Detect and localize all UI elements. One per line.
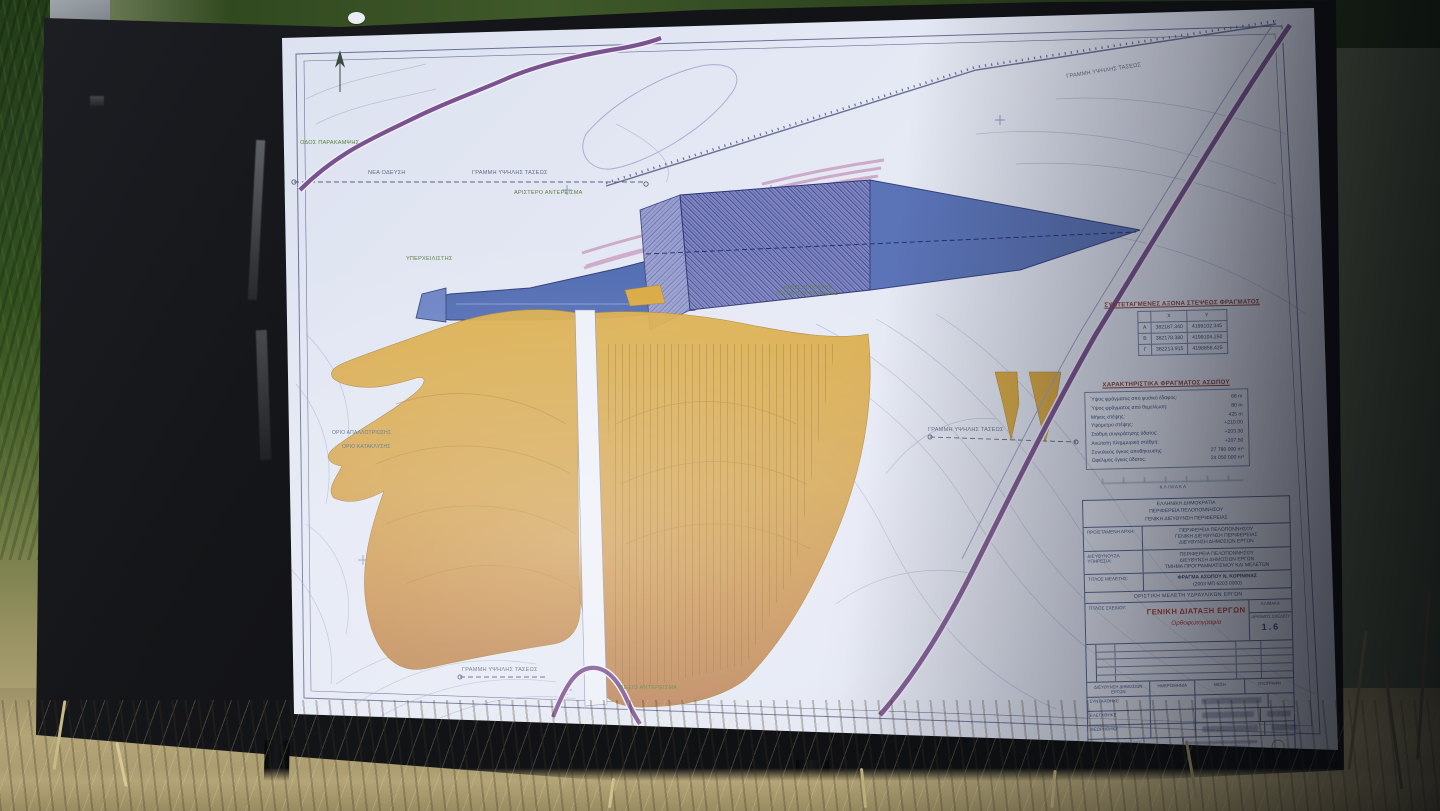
x-value: 382213.915 bbox=[1151, 343, 1188, 355]
map-label: ΓΡΑΜΜΗ ΥΨΗΛΗΣ ΤΑΣΕΩΣ bbox=[472, 170, 548, 176]
map-label: ΟΡΙΟ ΑΠΑΛΛΟΤΡΙΩΣΗΣ bbox=[332, 431, 391, 437]
scale-label: ΚΛΙΜΑΚΑ bbox=[1249, 600, 1291, 614]
point-id: Α bbox=[1138, 322, 1151, 333]
map-label: ΧΩΡΟΣ ΑΠΟΘΕΣΗΣ ΠΡΟΪΟΝΤΩΝ ΕΚΣΚΑΦΗΣ bbox=[766, 286, 848, 298]
satellite-dish bbox=[348, 12, 365, 24]
railway-line bbox=[276, 21, 1276, 186]
x-value: 382178.380 bbox=[1151, 332, 1188, 344]
drawing-title-row: ΤΙΤΛΟΣ ΣΧΕΔΙΟΥ: ΓΕΝΙΚΗ ΔΙΑΤΑΞΗ ΕΡΓΩΝ Ορθ… bbox=[1085, 600, 1292, 646]
drawing-title-label: ΤΙΤΛΟΣ ΣΧΕΔΙΟΥ: bbox=[1085, 603, 1144, 644]
dam-layout-drawing-sheet: ΟΔΟΣ ΠΑΡΑΚΑΜΨΗΣ ΑΡΙΣΤΕΡΟ ΑΝΤΕΡΕΙΣΜΑ ΥΠΕΡ… bbox=[276, 4, 1340, 756]
tape-mark bbox=[90, 96, 104, 106]
map-label: ΥΠΕΡΧΕΙΛΙΣΤΗΣ bbox=[406, 256, 453, 262]
map-label: ΑΡΙΣΤΕΡΟ ΑΝΤΕΡΕΙΣΜΑ bbox=[514, 190, 583, 196]
ground-foreground bbox=[0, 768, 1440, 811]
map-label: ΟΡΙΟ ΚΑΤΑΚΛΥΣΗΣ bbox=[342, 445, 391, 451]
crest-coordinates-table: ΣΥΝΤΕΤΑΓΜΕΝΕΣ ΑΞΟΝΑ ΣΤΕΨΕΩΣ ΦΡΑΓΜΑΤΟΣ X … bbox=[1094, 298, 1271, 357]
point-id: Γ bbox=[1139, 344, 1152, 355]
table-row: Γ 382213.915 4198858.425 bbox=[1139, 342, 1227, 355]
deposit-forks bbox=[995, 372, 1061, 442]
col-y: Y bbox=[1187, 310, 1227, 322]
map-label: ΟΔΟΣ ΠΑΡΑΚΑΜΨΗΣ bbox=[300, 140, 359, 146]
outdoor-photo-scene: ΟΔΟΣ ΠΑΡΑΚΑΜΨΗΣ ΑΡΙΣΤΕΡΟ ΑΝΤΕΡΕΙΣΜΑ ΥΠΕΡ… bbox=[0, 0, 1440, 811]
map-label: ΝΕΑ ΟΔΕΥΣΗ bbox=[368, 170, 406, 176]
dam-characteristics-table: ΧΑΡΑΚΤΗΡΙΣΤΙΚΑ ΦΡΑΓΜΑΤΟΣ ΑΣΩΠΟΥ Ύψος φρά… bbox=[1084, 378, 1250, 470]
tape-mark bbox=[248, 140, 265, 300]
map-label: ΓΡΑΜΜΗ ΥΨΗΛΗΣ ΤΑΣΕΩΣ bbox=[462, 667, 538, 673]
col-point bbox=[1138, 311, 1151, 322]
x-value: 382187.340 bbox=[1151, 321, 1188, 333]
dept-header: ΔΙΕΥΘΥΝΣΗ ΔΗΜΟΣΙΩΝ ΕΡΓΩΝ bbox=[1087, 682, 1150, 697]
title-block: ΕΛΛΗΝΙΚΗ ΔΗΜΟΚΡΑΤΙΑ ΠΕΡΙΦΕΡΕΙΑ ΠΕΛΟΠΟΝΝΗ… bbox=[1082, 495, 1296, 779]
drawing-title: ΓΕΝΙΚΗ ΔΙΑΤΑΞΗ ΕΡΓΩΝ Ορθοφωτογραφία bbox=[1143, 600, 1250, 642]
revisions-grid bbox=[1086, 641, 1293, 684]
map-label: ΔΕΞΙΟ ΑΝΤΕΡΕΙΣΜΑ bbox=[620, 685, 677, 691]
drawing-number: 1.6 bbox=[1250, 620, 1292, 635]
map-label: ΓΡΑΜΜΗ ΥΨΗΛΗΣ ΤΑΣΕΩΣ bbox=[928, 427, 1004, 433]
y-value: 4198858.425 bbox=[1188, 342, 1228, 354]
reservoir-area bbox=[328, 310, 870, 708]
col-x: X bbox=[1151, 310, 1188, 322]
point-id: Β bbox=[1139, 333, 1152, 344]
y-value: 4199104.250 bbox=[1188, 331, 1228, 343]
y-value: 4199102.345 bbox=[1187, 320, 1227, 332]
tape-mark bbox=[256, 330, 272, 460]
dam-body bbox=[640, 180, 1140, 330]
